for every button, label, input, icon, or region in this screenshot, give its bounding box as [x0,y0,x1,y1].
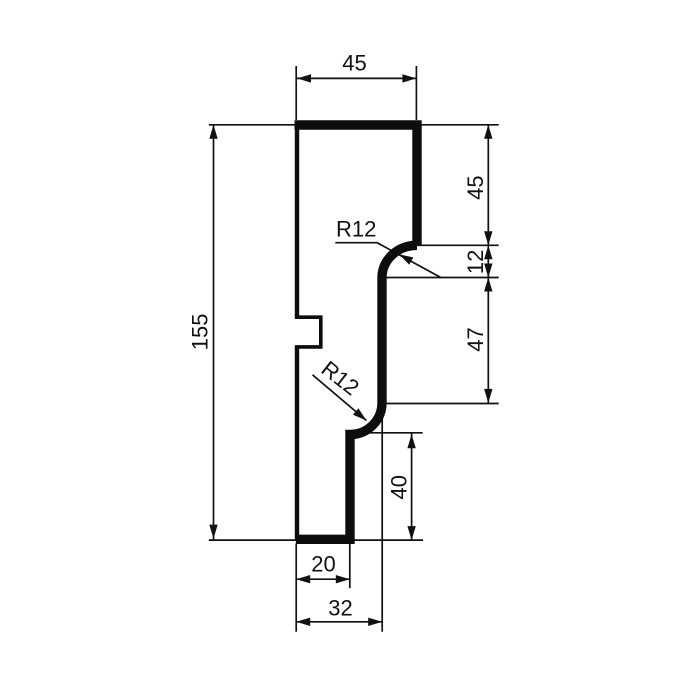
svg-text:20: 20 [311,552,335,577]
svg-text:12: 12 [463,250,488,274]
svg-text:45: 45 [342,51,366,76]
svg-text:155: 155 [188,314,213,351]
svg-text:R12: R12 [336,217,376,242]
svg-text:40: 40 [386,475,411,499]
svg-text:32: 32 [328,595,352,620]
svg-text:47: 47 [463,327,488,351]
svg-text:45: 45 [463,175,488,199]
